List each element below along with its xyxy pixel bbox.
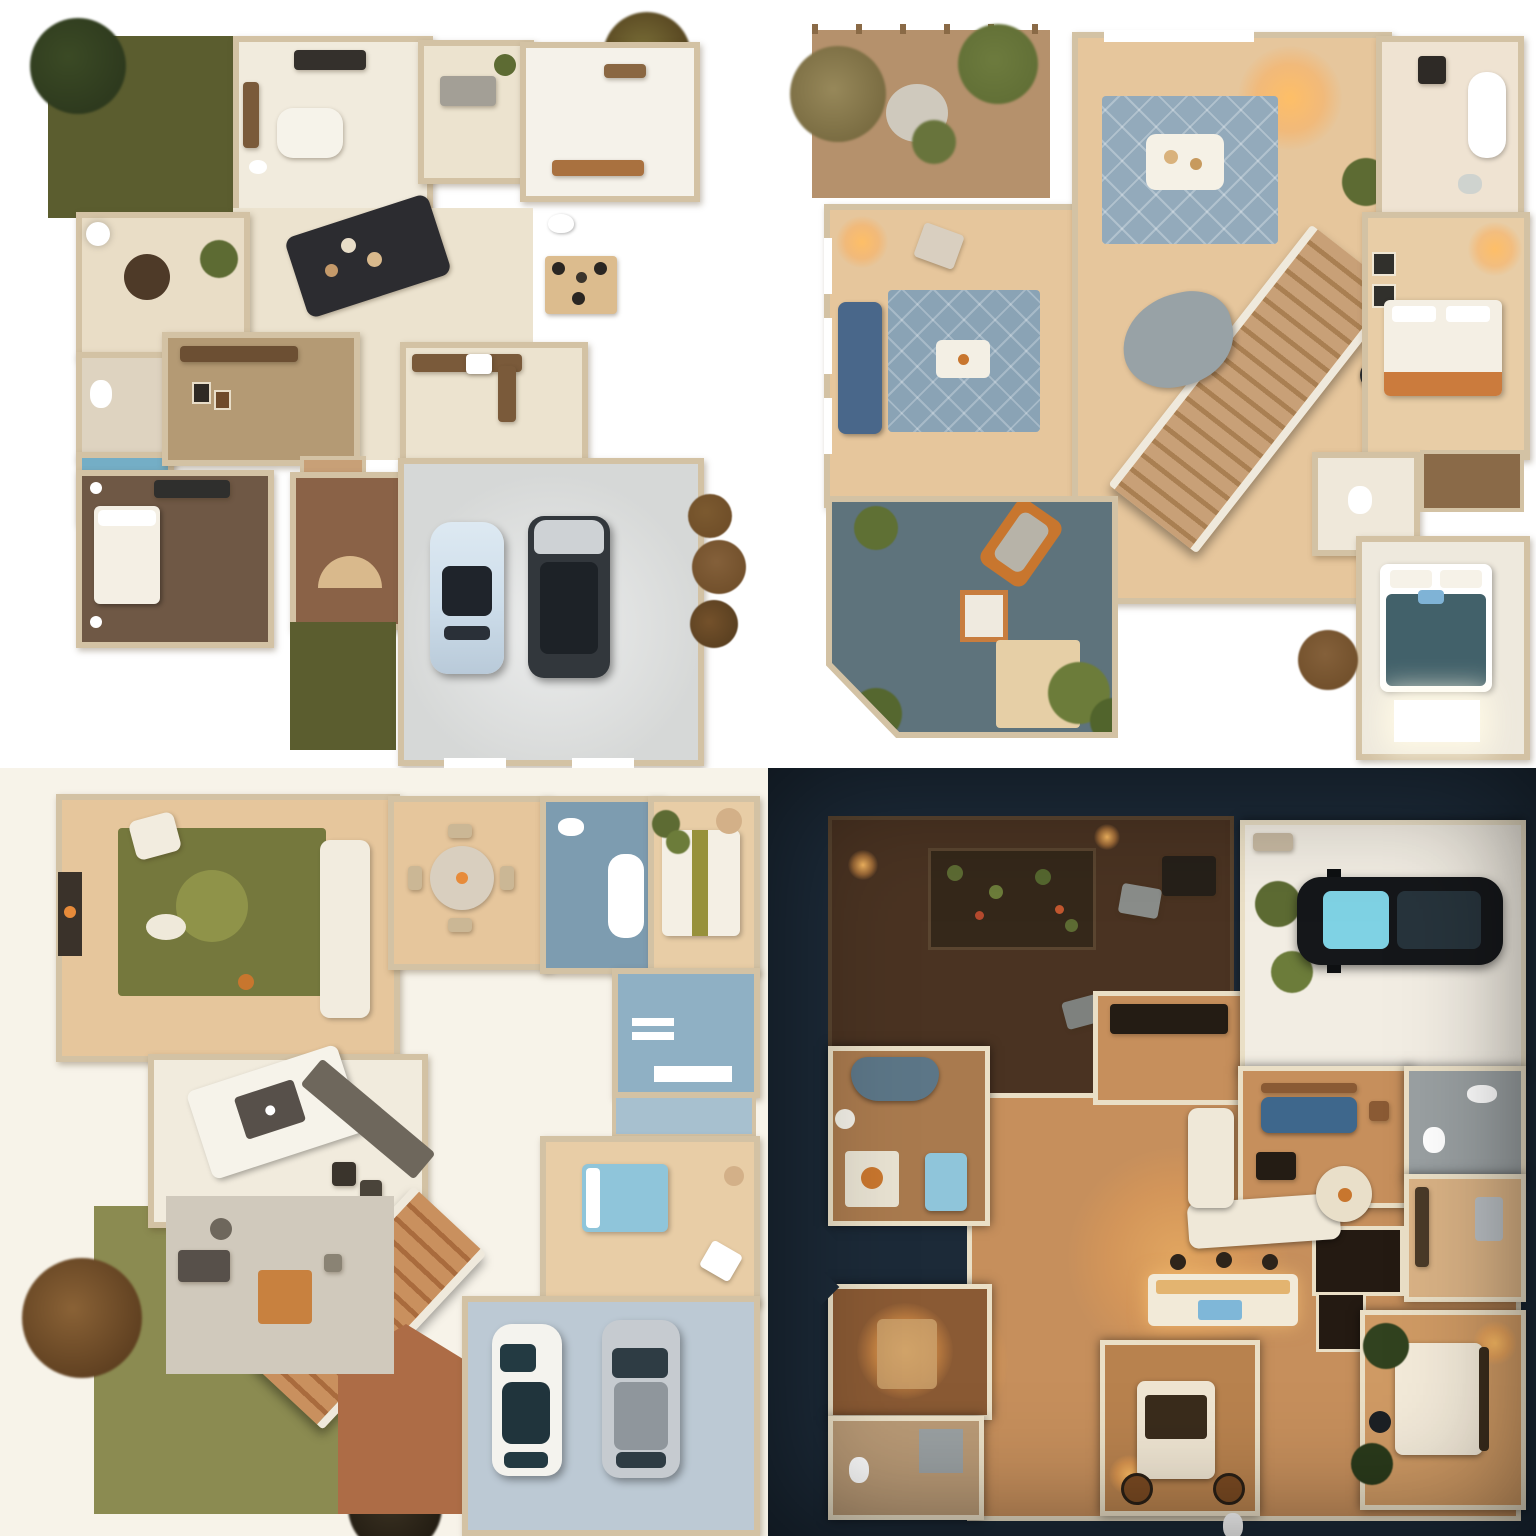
car-windshield-cyan [1323, 891, 1389, 949]
dresser [154, 480, 230, 498]
tv-wall [1110, 1004, 1228, 1034]
white-lamp [835, 1109, 855, 1129]
family-room-left [828, 1046, 990, 1226]
garage-shrub [1255, 881, 1301, 927]
orange-mat [258, 1270, 312, 1324]
garage [1240, 820, 1526, 1074]
bed-pillow [586, 1168, 600, 1228]
dining [388, 796, 552, 970]
car-rear-glass [444, 626, 490, 640]
plate [1164, 150, 1178, 164]
bedroom-top-right [648, 796, 760, 974]
floorplan-panel-4 [768, 768, 1536, 1536]
armchair [913, 222, 965, 270]
toilet [1348, 486, 1372, 514]
car-pale-blue [430, 522, 504, 674]
car-windshield [612, 1348, 668, 1378]
suv-hood [534, 520, 604, 554]
desk [440, 76, 496, 106]
kitchen [233, 36, 433, 222]
accent-pillow [238, 974, 254, 990]
study [832, 502, 1112, 732]
chair [408, 866, 422, 890]
shrub [692, 540, 746, 594]
fridge [1475, 1197, 1503, 1241]
washer [466, 354, 492, 374]
garden-bush [958, 24, 1038, 104]
counter-l [498, 366, 516, 422]
shrub [1090, 698, 1136, 744]
lounge [56, 794, 400, 1062]
speaker-pot [1121, 1473, 1153, 1505]
car-rear-glass [616, 1452, 666, 1468]
floorplan-panel-2 [768, 0, 1536, 768]
candle [456, 872, 468, 884]
bed-dim [877, 1319, 937, 1389]
garage-door-gap [572, 758, 634, 768]
bathroom-top [1376, 36, 1524, 220]
deck-table-dark [1162, 856, 1216, 896]
garage-bench [1253, 833, 1293, 851]
toilet [1223, 1513, 1243, 1536]
car-windshield [500, 1344, 536, 1372]
blue-chaise [925, 1153, 967, 1211]
blue-sofa [1261, 1097, 1357, 1133]
car-roof [614, 1382, 668, 1450]
closet-shelves [1420, 450, 1524, 512]
lantern-glow [1094, 824, 1120, 850]
slate-sofa [851, 1057, 939, 1101]
rug-circle [176, 870, 248, 942]
bedroom-mid-right [540, 1136, 760, 1306]
chair [448, 918, 472, 932]
nook-stool [572, 292, 585, 305]
bed-teal [1380, 564, 1492, 692]
side-table [1369, 1101, 1389, 1121]
patio [166, 1196, 394, 1374]
wine-rack-small [1316, 1292, 1366, 1352]
hall-toilet [548, 214, 574, 233]
bedroom-right [1360, 1310, 1526, 1510]
car-silver [602, 1320, 680, 1478]
sink [1467, 1085, 1497, 1103]
study-bush [854, 506, 898, 550]
toilet [90, 380, 112, 408]
car-white [492, 1324, 562, 1476]
planter-sprout [947, 865, 963, 881]
sofa-cushion [341, 238, 356, 253]
garage [462, 1296, 760, 1536]
entry [290, 472, 408, 630]
orange-pouf [861, 1167, 883, 1189]
bath-mat [632, 1018, 674, 1026]
toilet [1458, 174, 1482, 194]
coffee-table-dark [1256, 1152, 1296, 1180]
deck-ottoman [1118, 883, 1163, 919]
side-table [146, 914, 186, 940]
planter-bed [928, 848, 1096, 950]
ottoman [124, 254, 170, 300]
nook-stool [594, 262, 607, 275]
bath-mid-right [612, 968, 760, 1098]
warm-bedroom-left [828, 1284, 992, 1420]
blue-sofa [838, 302, 882, 434]
laundry [400, 342, 588, 466]
orange-bowl [1338, 1188, 1352, 1202]
bed-orange-trim [1384, 300, 1502, 396]
lantern-glow [848, 850, 878, 880]
plant [666, 830, 690, 854]
shrub [1298, 630, 1358, 690]
art-frame [214, 390, 231, 410]
chair [699, 1240, 743, 1283]
kitchen-island [277, 108, 343, 158]
bath-mat [632, 1032, 674, 1040]
desk-chair [210, 1218, 232, 1240]
bed-blanket [1145, 1395, 1207, 1439]
car-black [1297, 877, 1503, 965]
accent-pillow [1418, 590, 1444, 604]
bed-pillow [1392, 306, 1436, 322]
floorplan-render-grid [0, 0, 1536, 1536]
patio-court [520, 42, 700, 202]
window [824, 318, 832, 374]
wall-notch [803, 1225, 840, 1262]
floorplan-panel-3 [0, 768, 768, 1536]
inner-hall-closet [162, 332, 360, 466]
bathtub [608, 854, 644, 938]
bed-pillow [1440, 570, 1482, 588]
planter-sprout [1065, 919, 1078, 932]
wood-console [1261, 1083, 1357, 1093]
nook-stool [552, 262, 565, 275]
bath-left [828, 1416, 984, 1520]
lamp-glow [836, 216, 888, 268]
wall-frame [1372, 252, 1396, 276]
closet-band [612, 1094, 756, 1138]
chair [500, 866, 514, 890]
chair-cushion [992, 509, 1052, 574]
bed-pillow [1390, 570, 1432, 588]
dark-hamper [1418, 56, 1446, 84]
office-nook [418, 40, 534, 184]
rear-lawn-strip [290, 622, 396, 750]
diamond-rug [888, 290, 1040, 432]
plant-dark [1351, 1443, 1393, 1485]
patio-bench [552, 160, 644, 176]
shrub [690, 600, 738, 648]
cabinet-row [180, 346, 298, 362]
lamp-glow [1468, 222, 1522, 276]
shrub [850, 688, 902, 740]
pouf [716, 808, 742, 834]
bed-stripe [692, 830, 708, 936]
car-roof-glass [502, 1382, 550, 1444]
small-item [324, 1254, 342, 1272]
stool [1262, 1254, 1278, 1270]
tiled-bath [1404, 1066, 1526, 1180]
suv-glass [540, 562, 598, 654]
white-sectional [320, 840, 370, 1018]
fire [64, 906, 76, 918]
bed-blanket [1384, 372, 1502, 396]
blue-bed [582, 1164, 668, 1232]
kitchen-counter [243, 82, 259, 148]
sink [249, 160, 267, 174]
planter-flower [975, 911, 984, 920]
garden-bush [912, 120, 956, 164]
deck-ottoman [1061, 994, 1103, 1030]
island-wood-top [1156, 1280, 1290, 1294]
bedroom-center [1100, 1340, 1260, 1516]
planter-sprout [989, 885, 1003, 899]
skylight [1394, 700, 1480, 742]
blue-tray [1198, 1300, 1242, 1320]
kitchen-2 [1404, 1174, 1526, 1302]
bed-white [1395, 1343, 1483, 1455]
pouf [724, 1166, 744, 1186]
lamp-dot [90, 616, 102, 628]
stool [1170, 1254, 1186, 1270]
desk-plant [494, 54, 516, 76]
lamp-dot [90, 482, 102, 494]
chair [448, 824, 472, 838]
window [824, 398, 832, 454]
sofa-cushion [367, 252, 382, 267]
entry-fan-rug [318, 556, 382, 588]
corner-garden [812, 30, 1050, 198]
car-mirror [1327, 869, 1341, 877]
lawn-bush [30, 18, 126, 114]
car-mirror [1327, 965, 1341, 973]
l-sofa-vertical [1188, 1108, 1234, 1208]
bed-pillow [98, 510, 156, 526]
shrub [688, 494, 732, 538]
toilet [849, 1457, 869, 1483]
vanity [654, 1066, 732, 1082]
car-roof-pane [1397, 891, 1481, 949]
floor-lamp [86, 222, 110, 246]
window [824, 238, 832, 294]
speaker-pot [1213, 1473, 1245, 1505]
appliance [332, 1162, 356, 1186]
sofa-cushion [325, 264, 338, 277]
bed-headboard [1479, 1347, 1489, 1451]
art-frame [192, 382, 211, 404]
planter-sprout [1035, 869, 1051, 885]
patio-table [604, 64, 646, 78]
bedroom-bottom-right [1356, 536, 1530, 760]
fluffy-tree [22, 1258, 142, 1378]
bed-white [1137, 1381, 1215, 1479]
stool [1216, 1252, 1232, 1268]
plant [200, 240, 238, 278]
counter [1415, 1187, 1429, 1267]
bed-duvet [1386, 594, 1486, 686]
toilet [1423, 1127, 1445, 1153]
window-band [1104, 30, 1254, 42]
garage [398, 458, 704, 766]
bathroom-1 [76, 352, 172, 462]
planter-flower [1055, 905, 1064, 914]
table-bowl [958, 354, 969, 365]
island-lit [1148, 1274, 1298, 1326]
patio-desk [178, 1250, 230, 1282]
nook-stool [576, 272, 587, 283]
garden-bush [790, 46, 886, 142]
bedroom [76, 470, 274, 648]
car-rear-glass [504, 1452, 548, 1468]
bath-blue-tile [540, 796, 664, 974]
bed-pillow [1446, 306, 1490, 322]
shower-pan [919, 1429, 963, 1473]
car-dark-suv [528, 516, 610, 678]
floorplan-panel-1 [0, 0, 768, 768]
hall-rug [1102, 96, 1278, 244]
car-windshield [442, 566, 492, 616]
bathtub [1468, 72, 1506, 158]
picture-frame [960, 590, 1008, 642]
study-wall [826, 496, 1118, 738]
plate [1190, 158, 1202, 170]
lounge-chair [977, 496, 1066, 591]
coffee-table [1146, 134, 1224, 190]
bedroom-right [1362, 212, 1530, 460]
sink [558, 818, 584, 836]
robot-vacuum [1369, 1411, 1391, 1433]
stove [294, 50, 366, 70]
plant-dark [1363, 1323, 1409, 1369]
garage-door-gap [444, 758, 506, 768]
living-room [824, 204, 1088, 508]
